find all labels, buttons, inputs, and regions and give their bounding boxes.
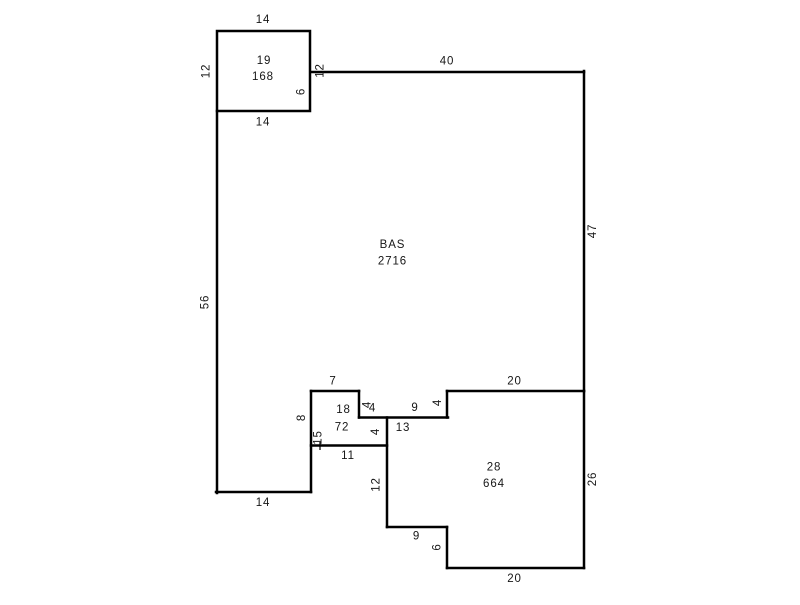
svg-text:4: 4 (369, 403, 376, 415)
svg-text:2716: 2716 (378, 256, 407, 268)
svg-text:47: 47 (587, 224, 599, 239)
svg-text:40: 40 (440, 56, 455, 68)
svg-text:14: 14 (256, 14, 271, 26)
svg-text:BAS: BAS (380, 239, 406, 251)
svg-text:15: 15 (313, 430, 325, 445)
svg-text:8: 8 (296, 414, 308, 421)
svg-text:28: 28 (487, 462, 502, 474)
svg-text:26: 26 (587, 472, 599, 487)
svg-text:20: 20 (507, 376, 522, 388)
svg-text:6: 6 (296, 88, 308, 95)
svg-text:14: 14 (256, 497, 271, 509)
svg-text:12: 12 (315, 63, 327, 78)
svg-text:4: 4 (432, 399, 444, 406)
svg-text:6: 6 (432, 543, 444, 550)
svg-text:11: 11 (341, 450, 355, 462)
svg-text:9: 9 (413, 531, 420, 543)
svg-text:12: 12 (201, 64, 213, 79)
svg-text:56: 56 (200, 295, 212, 310)
svg-text:9: 9 (411, 402, 418, 414)
svg-text:7: 7 (329, 376, 336, 388)
svg-text:19: 19 (257, 55, 272, 67)
svg-text:20: 20 (507, 573, 522, 585)
svg-text:664: 664 (483, 478, 505, 490)
svg-text:12: 12 (371, 477, 383, 492)
svg-text:168: 168 (252, 71, 274, 83)
svg-text:14: 14 (256, 117, 271, 129)
svg-text:13: 13 (396, 422, 411, 434)
svg-text:72: 72 (335, 422, 350, 434)
svg-text:4: 4 (370, 428, 382, 435)
svg-text:18: 18 (336, 404, 351, 416)
